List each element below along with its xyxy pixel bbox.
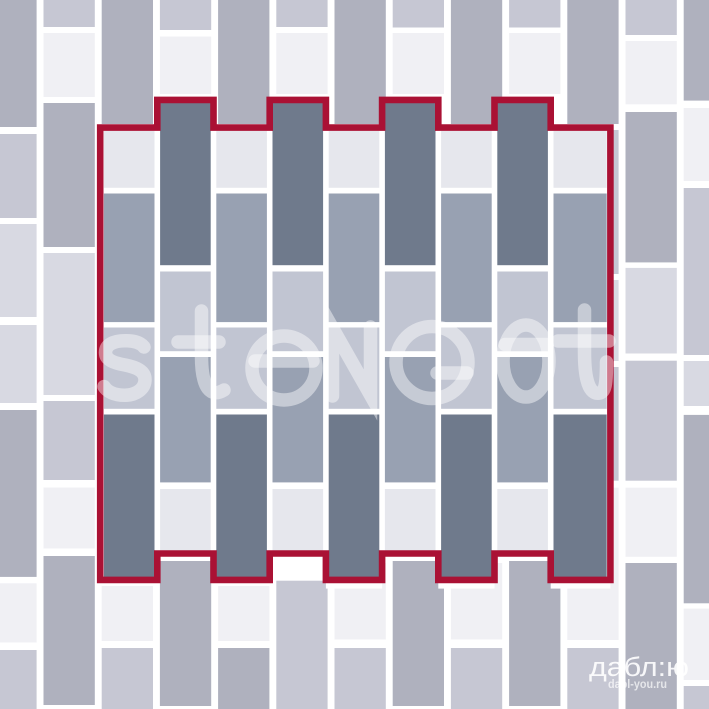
- svg-text:dabl-you.ru: dabl-you.ru: [608, 677, 667, 691]
